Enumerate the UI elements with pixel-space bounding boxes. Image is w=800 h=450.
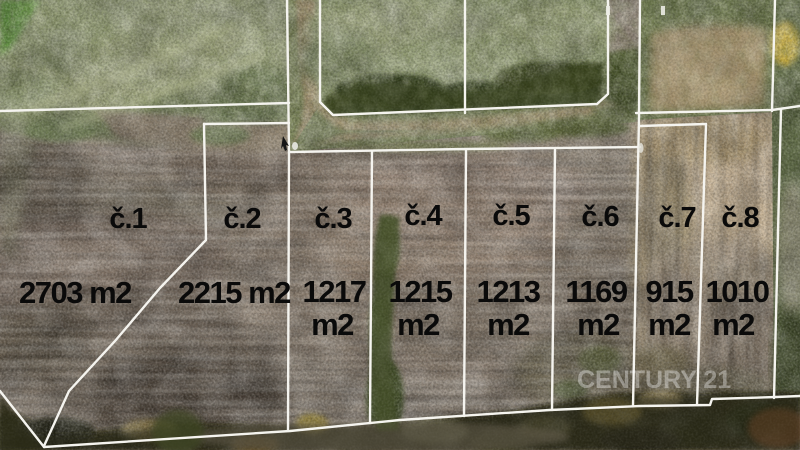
svg-text:č.4: č.4: [404, 200, 442, 232]
svg-text:m2: m2: [577, 307, 619, 342]
svg-text:č.3: č.3: [314, 203, 352, 235]
svg-text:1213: 1213: [477, 274, 541, 309]
svg-text:m2: m2: [648, 307, 690, 342]
svg-text:č.2: č.2: [223, 203, 260, 235]
svg-text:2703 m2: 2703 m2: [19, 275, 131, 310]
svg-text:1215: 1215: [389, 274, 453, 309]
svg-text:m2: m2: [397, 307, 439, 342]
svg-text:CENTURY 21: CENTURY 21: [577, 366, 731, 394]
svg-text:č.8: č.8: [721, 202, 759, 234]
svg-text:č.7: č.7: [658, 202, 695, 234]
svg-text:915: 915: [645, 274, 693, 309]
svg-text:1010: 1010: [706, 274, 769, 309]
svg-text:2215 m2: 2215 m2: [178, 275, 290, 310]
svg-text:m2: m2: [712, 307, 754, 342]
svg-text:1169: 1169: [565, 274, 628, 309]
svg-text:č.6: č.6: [581, 201, 619, 233]
svg-text:1217: 1217: [303, 274, 366, 309]
svg-text:č.1: č.1: [109, 203, 147, 235]
svg-text:m2: m2: [311, 307, 353, 342]
svg-text:č.5: č.5: [492, 200, 530, 232]
svg-text:m2: m2: [487, 307, 529, 342]
